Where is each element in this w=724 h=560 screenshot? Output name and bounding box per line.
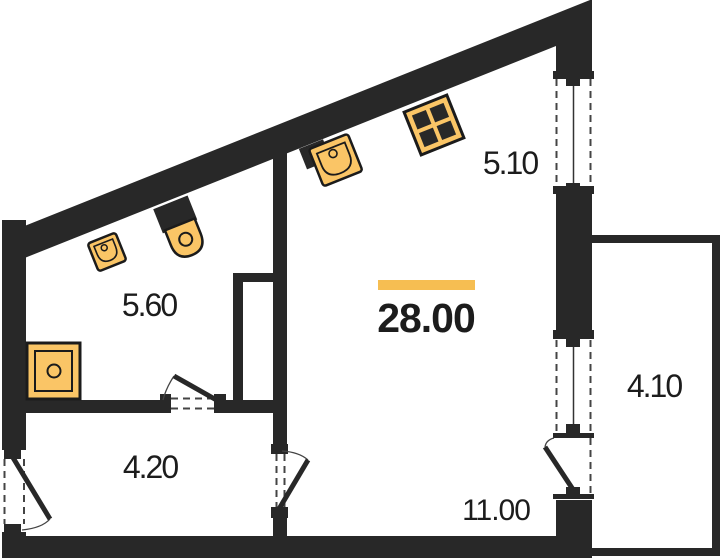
shower xyxy=(27,343,80,399)
window-stud xyxy=(566,337,580,347)
door-jamb xyxy=(160,394,171,413)
wall-right-lower xyxy=(556,500,592,558)
door-panel xyxy=(545,447,574,491)
room-area-label-living-zone: 11.00 xyxy=(462,494,530,527)
stove-body xyxy=(404,95,464,155)
bathroom-sink xyxy=(88,233,127,272)
floorplan-canvas: 5.60 5.10 28.00 4.10 4.20 11.00 xyxy=(0,0,724,560)
total-area-accent-bar xyxy=(378,280,475,290)
door-panel xyxy=(279,460,308,509)
sink-body xyxy=(88,233,127,272)
wall-bathroom-south-left xyxy=(2,400,162,413)
balcony-wall-bottom xyxy=(592,548,720,556)
door-swing-arc xyxy=(545,438,554,447)
door-threshold xyxy=(553,494,594,499)
shaft-wall-south xyxy=(233,402,287,413)
balcony-door xyxy=(545,438,594,499)
entrance-door xyxy=(4,450,50,533)
door-jamb xyxy=(271,444,288,454)
area-labels: 5.60 5.10 28.00 4.10 4.20 11.00 xyxy=(122,145,682,527)
stove xyxy=(404,95,464,155)
wall-right-middle xyxy=(556,193,592,337)
door-jamb xyxy=(4,524,21,533)
room-area-label-hallway: 4.20 xyxy=(123,449,178,485)
room-area-label-balcony: 4.10 xyxy=(627,368,682,404)
kitchen-sink-body xyxy=(309,134,363,187)
shaft-wall-north xyxy=(233,273,287,282)
total-area-label: 28.00 xyxy=(377,295,475,341)
window-sill xyxy=(553,433,594,438)
floorplan-drawing: 5.60 5.10 28.00 4.10 4.20 11.00 xyxy=(0,0,724,560)
room-area-label-kitchen-zone: 5.10 xyxy=(483,145,538,181)
bathroom-door xyxy=(160,376,226,413)
room-door xyxy=(271,444,308,518)
wall-left-upper xyxy=(2,220,26,450)
window-lower xyxy=(553,330,594,438)
shaft-wall-west xyxy=(233,273,243,413)
window-upper xyxy=(553,71,594,194)
wall-bottom xyxy=(2,536,592,558)
door-panel xyxy=(12,456,50,519)
balcony-wall-right xyxy=(712,235,720,556)
balcony-wall-top xyxy=(592,235,720,243)
window-stud xyxy=(566,183,580,193)
window-stud xyxy=(566,76,580,86)
toilet xyxy=(153,195,209,262)
door-swing-arc xyxy=(22,519,50,530)
room-area-label-bathroom: 5.60 xyxy=(122,287,177,323)
wall-diagonal xyxy=(2,0,592,267)
window-stud xyxy=(566,424,580,434)
